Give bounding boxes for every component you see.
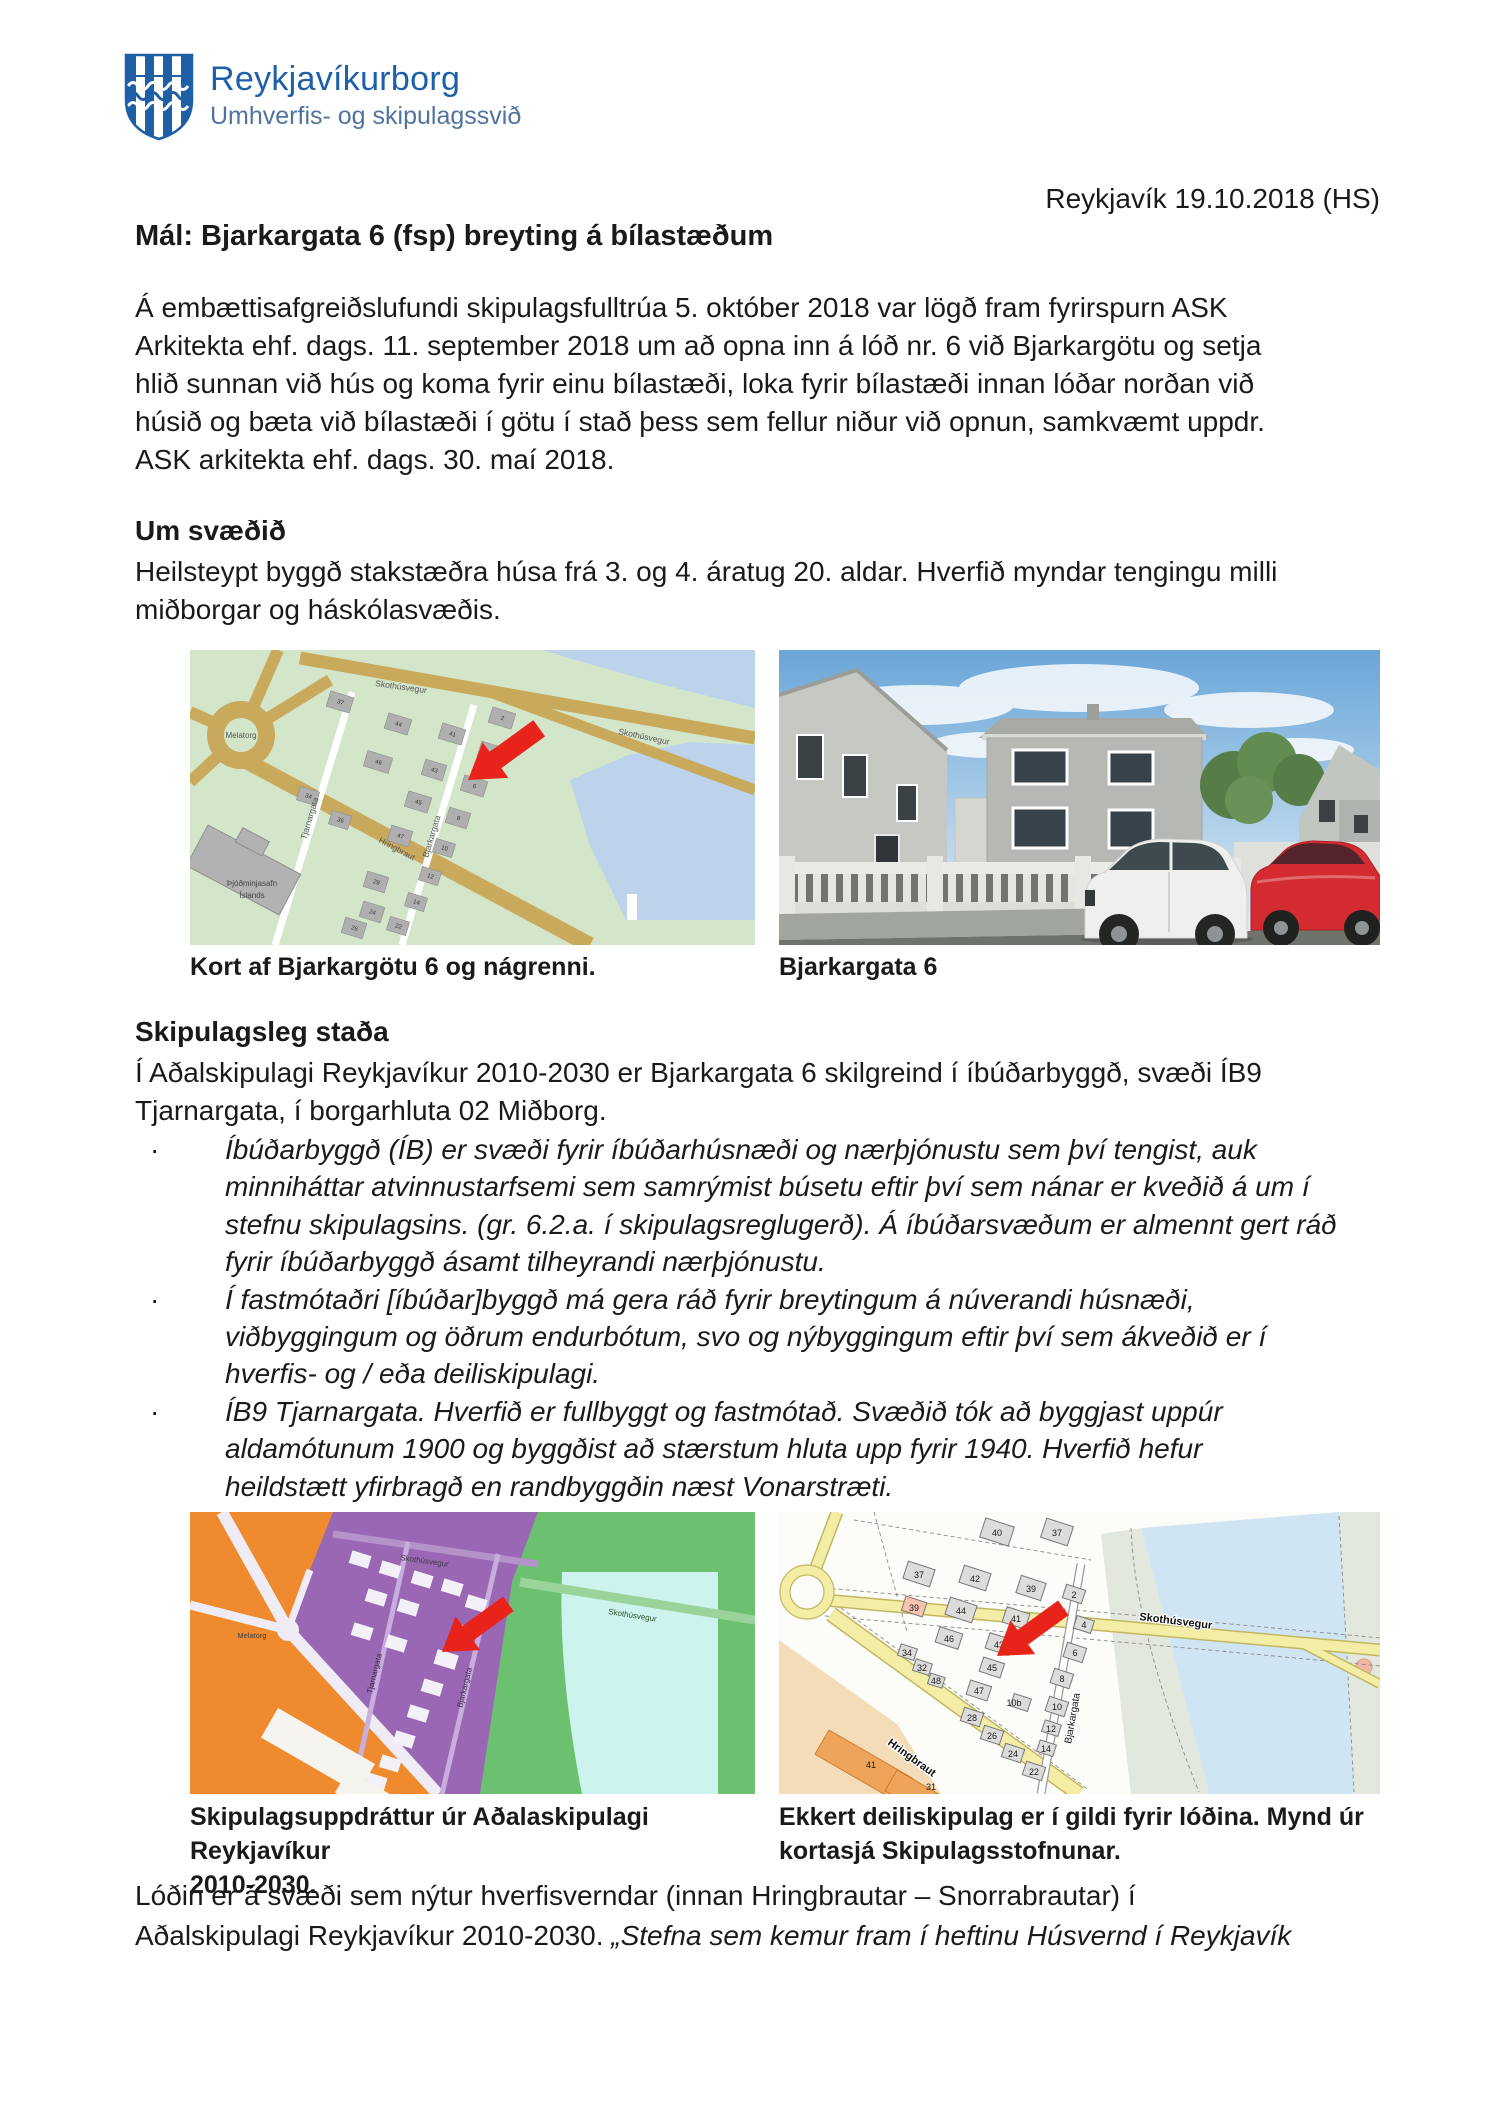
date-line: Reykjavík 19.10.2018 (HS) bbox=[1045, 183, 1380, 215]
masterplan-map-image: Melatorg Skothúsvegur Skothúsvegur Tjarn… bbox=[190, 1512, 755, 1794]
map4-lot-number: 41 bbox=[1011, 1614, 1021, 1624]
map3-label-melatorg: Melatorg bbox=[237, 1631, 266, 1640]
map4-lot-number: 6 bbox=[1072, 1648, 1077, 1658]
org-logo-block: Reykjavíkurborg Umhverfis- og skipulagss… bbox=[122, 52, 521, 142]
map-figure-overview: 37 44 46 34 36 41 43 45 47 2 4 6 8 10 12… bbox=[190, 650, 755, 945]
closing-line1: Lóðin er á svæði sem nýtur hverfisvernda… bbox=[135, 1880, 1136, 1911]
closing-line2-normal: Aðalskipulagi Reykjavíkur 2010-2030. bbox=[135, 1920, 611, 1951]
figure-row-1: 37 44 46 34 36 41 43 45 47 2 4 6 8 10 12… bbox=[190, 650, 1380, 945]
caption-photo: Bjarkargata 6 bbox=[779, 950, 937, 984]
bullet-text: Íbúðarbyggð (ÍB) er svæði fyrir íbúðarhú… bbox=[225, 1131, 1337, 1281]
map4-lot-number: 37 bbox=[914, 1570, 924, 1580]
map4-lot-number: 8 bbox=[1059, 1674, 1064, 1684]
map4-lot-number: 42 bbox=[970, 1574, 980, 1584]
map4-lot-number: 28 bbox=[967, 1713, 977, 1723]
map4-lot-number: 39 bbox=[1026, 1584, 1036, 1594]
map4-lot-number: 41 bbox=[866, 1760, 876, 1770]
map4-lot-number: 46 bbox=[944, 1634, 954, 1644]
figure-row-2: Melatorg Skothúsvegur Skothúsvegur Tjarn… bbox=[190, 1512, 1380, 1794]
map4-lot-number: 40 bbox=[992, 1528, 1002, 1538]
bullet-text: Í fastmótaðri [íbúðar]byggð má gera ráð … bbox=[225, 1281, 1266, 1393]
org-department: Umhverfis- og skipulagssvið bbox=[210, 102, 521, 131]
bullet-marker: · bbox=[150, 1131, 225, 1281]
map4-lot-number: 22 bbox=[1029, 1767, 1039, 1777]
map4-lot-number: 32 bbox=[917, 1663, 927, 1673]
map4-lot-number: 14 bbox=[1041, 1744, 1051, 1754]
caption-map-overview: Kort af Bjarkargötu 6 og nágrenni. bbox=[190, 950, 596, 984]
map4-lot-number: 44 bbox=[956, 1606, 966, 1616]
map1-label-museum: Íslands bbox=[239, 891, 264, 900]
map4-lot-number: 48 bbox=[931, 1676, 941, 1686]
map1-label-museum: Þjóðminjasafn bbox=[227, 879, 277, 888]
closing-line2-italic: „Stefna sem kemur fram í heftinu Húsvern… bbox=[611, 1920, 1291, 1951]
document-title: Mál: Bjarkargata 6 (fsp) breyting á bíla… bbox=[135, 220, 773, 253]
section-heading-skipulagsleg: Skipulagsleg staða bbox=[135, 1016, 389, 1048]
photo-figure-bjarkargata6 bbox=[779, 650, 1380, 945]
closing-paragraph: Lóðin er á svæði sem nýtur hverfisvernda… bbox=[135, 1876, 1291, 1956]
map4-lot-number: 26 bbox=[987, 1731, 997, 1741]
street-photo-image bbox=[779, 650, 1380, 945]
list-item: · Íbúðarbyggð (ÍB) er svæði fyrir íbúðar… bbox=[150, 1131, 1360, 1281]
map4-lot-number: 24 bbox=[1008, 1749, 1018, 1759]
map-figure-cadastre: 40 37 37 42 39 2 39 44 41 4 46 43 6 34 3… bbox=[779, 1512, 1380, 1794]
bullet-marker: · bbox=[150, 1281, 225, 1393]
map-figure-masterplan: Melatorg Skothúsvegur Skothúsvegur Tjarn… bbox=[190, 1512, 755, 1794]
document-page: Reykjavíkurborg Umhverfis- og skipulagss… bbox=[0, 0, 1500, 2122]
map4-lot-number: 37 bbox=[1052, 1528, 1062, 1538]
cadastre-map-image: 40 37 37 42 39 2 39 44 41 4 46 43 6 34 3… bbox=[779, 1512, 1380, 1794]
org-name: Reykjavíkurborg bbox=[210, 60, 521, 99]
intro-paragraph: Á embættisafgreiðslufundi skipulagsfullt… bbox=[135, 289, 1265, 479]
porch bbox=[955, 798, 989, 872]
skipulagsleg-paragraph: Í Aðalskipulagi Reykjavíkur 2010-2030 er… bbox=[135, 1054, 1262, 1130]
map4-lot-number: 31 bbox=[926, 1782, 936, 1792]
reykjavik-shield-icon bbox=[122, 52, 196, 142]
map4-lot-number: 10b bbox=[1006, 1698, 1021, 1708]
overview-map-image: 37 44 46 34 36 41 43 45 47 2 4 6 8 10 12… bbox=[190, 650, 755, 945]
map4-lot-number: 10 bbox=[1052, 1702, 1062, 1712]
bullet-marker: · bbox=[150, 1393, 225, 1505]
map4-lot-number: 2 bbox=[1071, 1590, 1076, 1600]
map4-lot-number: 39 bbox=[909, 1603, 919, 1613]
map4-lot-number: 45 bbox=[987, 1663, 997, 1673]
list-item: · Í fastmótaðri [íbúðar]byggð má gera rá… bbox=[150, 1281, 1360, 1393]
caption-cadastre: Ekkert deiliskipulag er í gildi fyrir ló… bbox=[779, 1800, 1379, 1868]
map4-lot-number: 12 bbox=[1046, 1724, 1056, 1734]
map4-lot-number: 34 bbox=[902, 1648, 912, 1658]
section-heading-um-svaedid: Um svæðið bbox=[135, 515, 286, 547]
bullet-text: ÍB9 Tjarnargata. Hverfið er fullbyggt og… bbox=[225, 1393, 1223, 1505]
map4-lot-number: 47 bbox=[974, 1686, 984, 1696]
map4-lot-number: 4 bbox=[1081, 1620, 1086, 1630]
map1-label-melatorg: Melatorg bbox=[225, 731, 256, 740]
bullet-list: · Íbúðarbyggð (ÍB) er svæði fyrir íbúðar… bbox=[150, 1131, 1360, 1505]
um-svaedid-paragraph: Heilsteypt byggð stakstæðra húsa frá 3. … bbox=[135, 553, 1277, 629]
list-item: · ÍB9 Tjarnargata. Hverfið er fullbyggt … bbox=[150, 1393, 1360, 1505]
